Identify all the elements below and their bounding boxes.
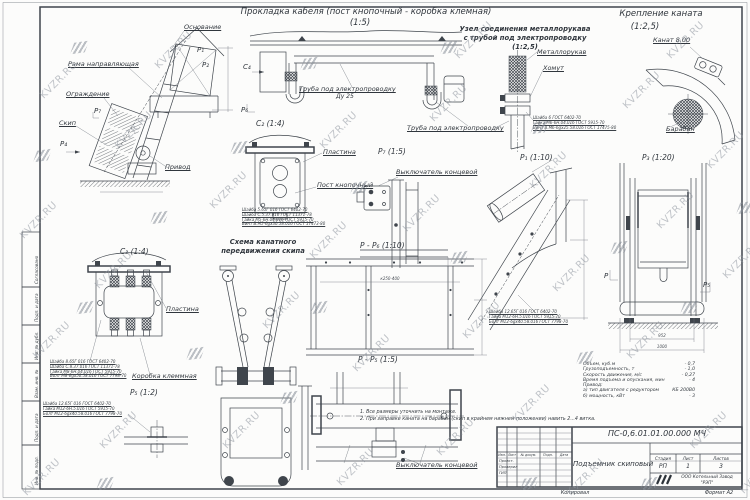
view-label-p7: P₇ (1:5) — [378, 147, 406, 156]
view-detail-p1 — [468, 160, 588, 330]
view-label-pp5: P - P₅ (1:5) — [358, 355, 398, 364]
fastener-line: Болт М12-6gх40.58.016 ГОСТ 7798-70 — [489, 320, 568, 325]
title-rope-fixing: Крепление каната — [605, 9, 717, 19]
copied-label: Копировал — [545, 490, 605, 496]
tb-row-gip: ГИП — [499, 471, 506, 475]
view-terminal-box — [88, 253, 188, 458]
sheets-header: Листов — [700, 456, 742, 461]
marker-p1: P₁ — [197, 46, 204, 54]
dim-p3-outer: 1000 — [642, 344, 682, 349]
spec-value: - 3 — [689, 394, 695, 399]
callout-rama: Рама направляющая — [68, 60, 139, 68]
strip-inv-podl: Инв. № подл. — [34, 456, 39, 485]
col-list: Лист — [507, 453, 517, 457]
sheet-header: Лист — [676, 456, 700, 461]
title-rope-fixing-scale: (1:2,5) — [605, 22, 685, 32]
strip-inv-dubl: Инв. № дубл. — [34, 331, 39, 360]
dim-p3-inner: 952 — [642, 333, 682, 338]
title-hose-unit-2: с трубой под электропроводку — [450, 34, 600, 42]
strip-podp-1: Подп. и дата — [34, 293, 39, 322]
fastener-line: Болт М8-6gх50.58.016 ГОСТ 7798-70 — [50, 374, 126, 379]
view-p3 — [608, 163, 718, 353]
col-data: Дата — [556, 453, 572, 457]
marker-p2: P₂ — [202, 61, 209, 69]
title-cable-scale: (1:5) — [330, 18, 390, 28]
fastener-stack-post: Шайба 5.65Г 016 ГОСТ 6402-70Шайба С.5.37… — [242, 208, 325, 227]
marker-p4: P₄ — [60, 140, 67, 148]
sheet-value: 1 — [676, 463, 700, 470]
fastener-stack-hose: Шайба 6 ГОСТ 6402-70Гайка М6-6Н.04.016 Г… — [533, 116, 616, 130]
drawing-sheet: Прокладка кабеля (пост кнопочный - короб… — [0, 0, 750, 500]
callout-baraban: Барабан — [666, 125, 695, 133]
fastener-stack-p1: Шайба 12.65Г 016 ГОСТ 6402-70Гайка М12-6… — [489, 310, 568, 324]
title-hose-unit-1: Узел соединения металлорукава — [450, 25, 600, 33]
callout-plastina-2: Пластина — [166, 305, 199, 313]
note-line: 2. При заправке каната на барабан (скип … — [360, 416, 596, 423]
company-name-1: ООО Котельный Завод — [672, 475, 742, 480]
strip-soglasovano: Согласовано — [34, 256, 39, 284]
spec-list: Объем, куб.м- 0,7 Грузоподъемность, т- 1… — [583, 362, 695, 399]
view-label-pp6: P - P₆ (1:10) — [360, 241, 405, 250]
title-rope-scheme-1: Схема канатного — [218, 238, 308, 246]
callout-privod: Привод — [165, 163, 191, 171]
drawing-linework — [0, 0, 750, 500]
title-cable-routing: Прокладка кабеля (пост кнопочный - короб… — [240, 7, 492, 17]
spec-value: - 4 — [689, 378, 695, 383]
view-label-c3: C₃ (1:4) — [120, 247, 149, 256]
callout-truba-2: Труба под электропроводку — [407, 124, 504, 132]
col-izm: Изм. — [497, 453, 507, 457]
callout-osnovanie: Основание — [184, 23, 221, 31]
callout-end-switch-2: Выключатель концевой — [396, 461, 477, 469]
marker-c4: C₄ — [243, 63, 251, 71]
note-line: 1. Все размеры уточнить на монтаже. — [360, 409, 596, 416]
fastener-line: Болт М12-6gх40.58.016 ГОСТ 7798-70 — [43, 412, 122, 417]
callout-truba-1: Труба под электропроводку — [299, 85, 396, 93]
drawing-title: Подъемник скиповый — [573, 460, 649, 468]
view-label-p3: P₃ (1:20) — [642, 153, 675, 162]
col-doc: № докум. — [517, 453, 540, 457]
tb-row-proekt: Проект. — [499, 459, 514, 463]
view-label-c2: C₂ (1:4) — [256, 119, 285, 128]
spec-row: б) мощность, кВт- 3 — [583, 394, 695, 399]
doc-number: ПС-0,6.01.01.00.000 МЧ — [575, 429, 739, 438]
callout-ograzhdenie: Ограждение — [66, 90, 109, 98]
view-rope-scheme — [216, 266, 296, 486]
callout-metallorukav: Металлорукав — [537, 48, 586, 56]
view-detail-p7 — [357, 177, 448, 269]
callout-skip: Скип — [59, 119, 76, 127]
fastener-stack-box: Шайба 8.65Г 016 ГОСТ 6402-70Шайба С.8.37… — [50, 360, 126, 379]
tb-row-proveril: Проверил — [499, 465, 517, 469]
view-label-p1: P₁ (1:10) — [520, 153, 553, 162]
view-label-p5: P₅ (1:2) — [130, 388, 158, 397]
strip-vzam-inv: Взам. инв. № — [34, 370, 39, 398]
marker-p3-p: P — [604, 272, 608, 280]
format-label: Формат А2 — [696, 490, 742, 496]
callout-plastina: Пластина — [323, 148, 356, 156]
dim-pp6-span: к250-400 — [360, 276, 420, 281]
callout-end-switch-1: Выключатель концевой — [396, 168, 477, 176]
stage-header: Стадия — [650, 456, 676, 461]
marker-p3-p5: P₅ — [703, 281, 710, 289]
col-podp: Подп. — [540, 453, 556, 457]
company-name-2: "РЭП" — [672, 481, 742, 486]
strip-podp-2: Подп. и дата — [34, 413, 39, 442]
marker-p7: P₇ — [94, 107, 101, 115]
marker-p6: P₆ — [241, 106, 248, 114]
view-cable-routing — [247, 31, 468, 126]
callout-kanat: Канат 8.00 — [653, 36, 690, 44]
callout-post: Пост кнопочный — [317, 181, 373, 189]
fastener-line: Винт В.М5-6gх30.58.016 ГОСТ 17473-80 — [242, 222, 325, 227]
callout-du25: Ду 25 — [336, 93, 354, 100]
view-hose-unit — [495, 50, 543, 152]
fastener-stack-bolt: Шайба 12.65Г 016 ГОСТ 6402-70Гайка М12-6… — [43, 402, 122, 416]
fastener-line: Винт В.М6-6gх25.58.016 ГОСТ 17475-80 — [533, 126, 616, 131]
callout-korobka: Коробка клеммная — [132, 372, 197, 380]
notes-block: 1. Все размеры уточнить на монтаже. 2. П… — [360, 409, 596, 423]
title-rope-scheme-2: передвижения скипа — [218, 247, 308, 255]
view-section-pp6 — [306, 259, 487, 355]
sheets-value: 3 — [700, 463, 742, 470]
stage-value: РП — [650, 463, 676, 470]
callout-khomut: Хомут — [543, 64, 564, 72]
spec-label: б) мощность, кВт — [583, 394, 625, 399]
view-general-arrangement — [66, 28, 233, 192]
